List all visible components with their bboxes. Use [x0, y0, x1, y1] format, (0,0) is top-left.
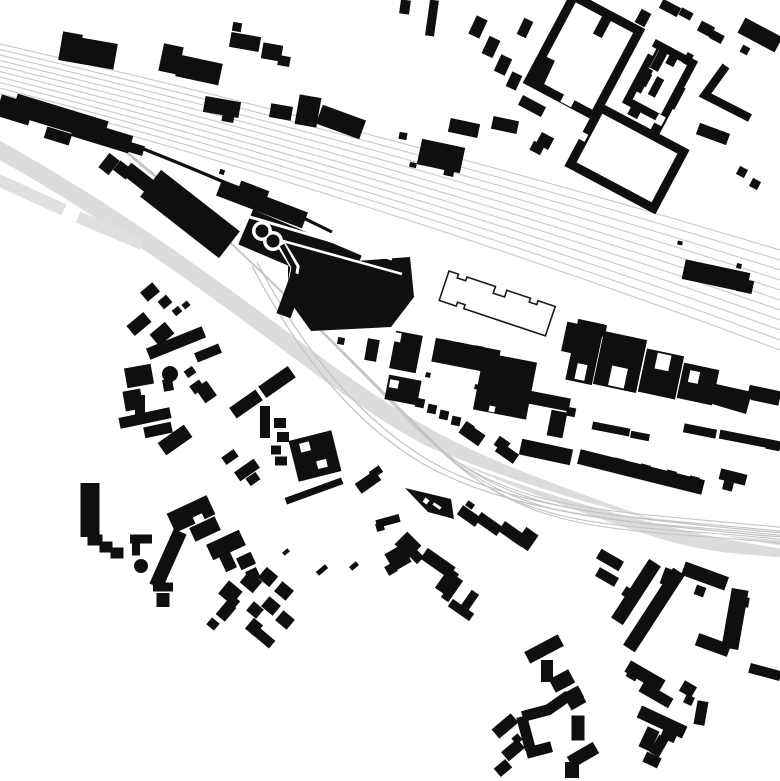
- figure-ground-map: [0, 0, 780, 781]
- site-plan-canvas: [0, 0, 780, 781]
